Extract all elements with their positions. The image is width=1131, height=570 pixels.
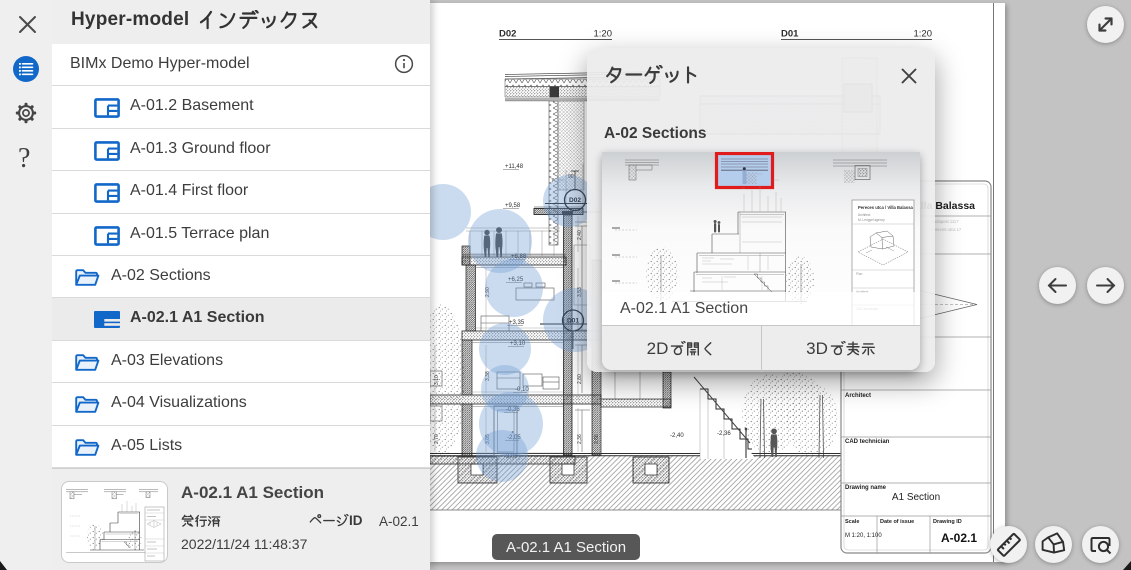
svg-text:-2,40: -2,40 (670, 433, 684, 439)
svg-text:-2,36: -2,36 (717, 431, 731, 437)
svg-text:Drawing name: Drawing name (845, 485, 887, 491)
svg-text:Scale: Scale (845, 519, 859, 525)
svg-text:Architect: Architect (858, 213, 871, 217)
svg-text:+11,48: +11,48 (505, 164, 524, 170)
svg-text:Date of issue: Date of issue (880, 519, 914, 525)
svg-text:A1 Section: A1 Section (892, 492, 940, 503)
svg-text:Architect: Architect (845, 393, 871, 399)
svg-text:+9,58: +9,58 (505, 203, 521, 209)
svg-text:1:20: 1:20 (594, 29, 613, 40)
svg-text:Budapest 1117: Budapest 1117 (931, 219, 959, 224)
svg-text:CAD technician: CAD technician (845, 439, 890, 445)
svg-text:1:20: 1:20 (914, 29, 933, 40)
svg-text:Plan: Plan (856, 272, 863, 276)
svg-text:2,66: 2,66 (594, 434, 600, 444)
svg-text:A-02.1: A-02.1 (941, 531, 977, 545)
svg-text:M 1:20, 1:100: M 1:20, 1:100 (845, 533, 882, 539)
svg-text:D01: D01 (781, 29, 799, 40)
svg-text:M. Lengyel agency: M. Lengyel agency (858, 218, 885, 222)
svg-text:Drawing ID: Drawing ID (933, 519, 962, 525)
svg-text:D02: D02 (499, 29, 516, 40)
svg-text:Pereces utca 17: Pereces utca 17 (931, 227, 962, 232)
svg-text:Pereces utca / Villa Balassa: Pereces utca / Villa Balassa (858, 205, 914, 210)
